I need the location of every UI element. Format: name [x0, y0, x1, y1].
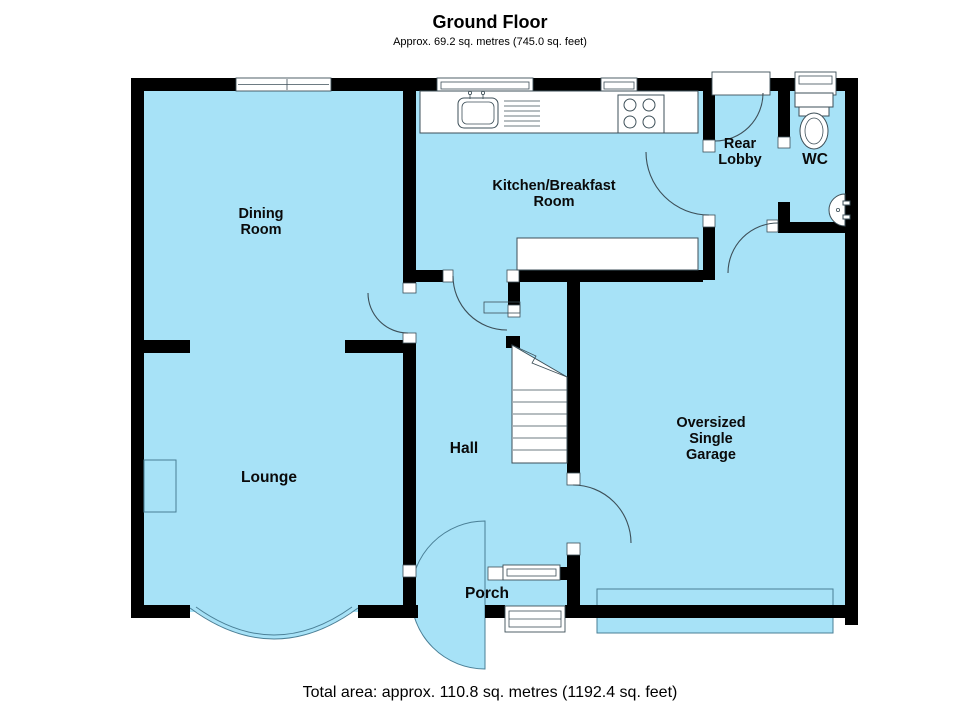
room-label-dining-1: Dining — [238, 206, 283, 222]
room-label-dining-2: Room — [240, 222, 281, 238]
dining-window-icon — [236, 78, 331, 91]
wc-window-icon — [795, 72, 836, 95]
room-label-kitchen-1: Kitchen/Breakfast — [492, 178, 615, 194]
total-area-caption: Total area: approx. 110.8 sq. metres (11… — [0, 684, 980, 702]
room-label-hall: Hall — [450, 440, 478, 457]
room-label-wc: WC — [802, 151, 828, 168]
room-label-kitchen-2: Room — [533, 194, 574, 210]
floorplan-canvas: Dining Room Kitchen/Breakfast Room Rear … — [0, 0, 980, 712]
room-label-lobby-2: Lobby — [718, 152, 762, 168]
rear-door-threshold — [712, 72, 770, 95]
room-label-lounge: Lounge — [241, 469, 297, 486]
porch-side-window-icon — [503, 565, 560, 580]
floor-area — [138, 85, 851, 639]
hob-icon — [618, 95, 664, 133]
porch-front-window-icon — [505, 606, 565, 632]
bay-window-floor — [190, 604, 358, 639]
room-label-garage-1: Oversized — [676, 415, 745, 431]
room-label-lobby-1: Rear — [724, 136, 757, 152]
room-label-porch: Porch — [465, 585, 509, 602]
room-label-garage-2: Single — [689, 431, 733, 447]
room-label-garage-3: Garage — [686, 447, 736, 463]
